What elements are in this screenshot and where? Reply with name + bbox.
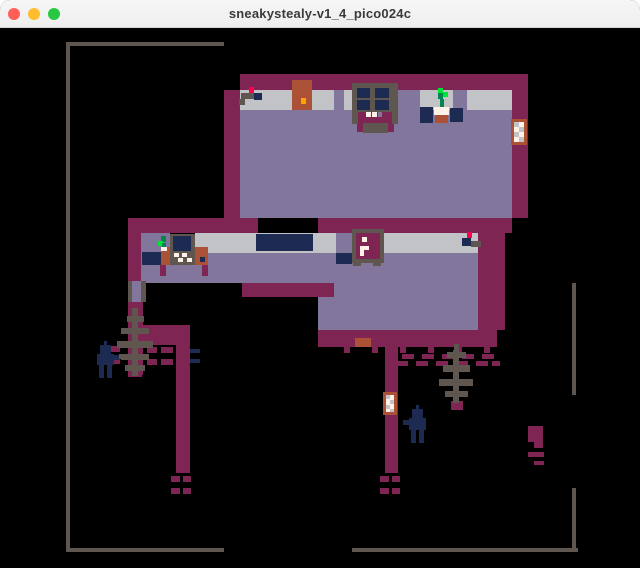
guard2-arm xyxy=(403,420,410,425)
ladder1-check2 xyxy=(519,127,524,132)
fence-l-dash2 xyxy=(161,347,173,353)
door1 xyxy=(292,80,312,110)
hut-dash1 xyxy=(528,452,544,457)
path-left-end-dash3 xyxy=(171,488,180,494)
band-lavender-patch4 xyxy=(336,233,352,253)
safe-handle-stem xyxy=(360,250,364,256)
boundary-bottom-right-line xyxy=(352,548,578,552)
door-mat xyxy=(355,338,371,347)
camera1-foot xyxy=(239,99,245,105)
hedge-dash11 xyxy=(492,361,500,366)
boundary-right-upper-line xyxy=(572,283,576,395)
plant1-leaf2 xyxy=(443,92,448,97)
mid-right-wall xyxy=(478,233,505,330)
desk-leg-right xyxy=(202,265,208,276)
band-lavender-patch2 xyxy=(398,90,420,110)
stove-pane-bl xyxy=(357,100,370,110)
top-room-bottom-wall xyxy=(318,218,512,233)
safe-foot-right xyxy=(373,261,381,266)
band-lavender-patch3 xyxy=(453,90,467,110)
app-window: sneakystealy-v1_4_pico024c xyxy=(0,0,640,568)
guard1-leg-left xyxy=(99,365,104,378)
bench xyxy=(142,252,161,265)
hedge-dash6 xyxy=(396,361,408,366)
hedge-tooth6 xyxy=(484,347,490,353)
camera1-arm xyxy=(241,93,254,99)
camera1-body xyxy=(254,93,262,100)
fence-l-dash3 xyxy=(190,349,200,353)
stove-tooth1 xyxy=(366,112,371,117)
camera1-light xyxy=(249,87,254,93)
stove-pane-tl xyxy=(357,88,370,98)
left-room-top-wall xyxy=(128,218,258,233)
guard2-leg-right xyxy=(419,430,424,443)
desk-knob xyxy=(200,257,205,262)
fence-l-dash5 xyxy=(161,359,173,365)
stove-shoulder-left xyxy=(352,112,358,124)
floor-counter xyxy=(336,253,352,264)
hedge-dash2 xyxy=(422,354,434,359)
path-left-end-dash2 xyxy=(183,476,191,482)
zoom-button[interactable] xyxy=(48,8,60,20)
stove-shoulder-right xyxy=(392,112,398,124)
window-title: sneakystealy-v1_4_pico024c xyxy=(229,6,411,21)
hedge-dash7 xyxy=(416,361,428,366)
stove-tooth3 xyxy=(378,112,382,117)
hut-tail xyxy=(534,442,543,448)
corridor-floor xyxy=(132,281,141,302)
hedge-dash10 xyxy=(476,361,488,366)
door1-handle xyxy=(301,98,306,104)
hedge-dash5 xyxy=(482,354,494,359)
corridor-jamb-right xyxy=(141,281,146,302)
guard1-body xyxy=(97,354,114,365)
top-room-left-wall xyxy=(224,90,240,218)
stove-base xyxy=(363,123,388,133)
hedge-tooth2 xyxy=(372,347,378,353)
hedge-dash1 xyxy=(402,354,414,359)
plant1-pot-base xyxy=(435,115,448,123)
guard1-hand xyxy=(119,354,123,359)
traffic-lights xyxy=(8,8,60,20)
long-counter xyxy=(256,234,313,251)
path-left-end-dash4 xyxy=(183,488,191,494)
boundary-left-line xyxy=(66,42,70,552)
monitor-screen xyxy=(173,236,191,251)
stove-apron-right xyxy=(388,124,394,132)
safe-foot-left xyxy=(353,261,361,266)
guard1-leg-right xyxy=(107,365,112,378)
game-canvas[interactable] xyxy=(0,0,640,568)
guard1-head xyxy=(100,345,111,354)
plant2-pot xyxy=(161,247,167,251)
guard2-leg-left xyxy=(411,430,416,443)
left-room-left-wall xyxy=(128,233,142,281)
path-right-end-dash4 xyxy=(392,488,400,494)
ladder2-check4 xyxy=(390,409,394,412)
hut-dash2 xyxy=(534,461,544,465)
path-left-lower xyxy=(176,345,190,473)
title-bar: sneakystealy-v1_4_pico024c xyxy=(0,0,640,28)
kitchen-counter1 xyxy=(420,107,433,123)
plant1-pot-top xyxy=(434,107,449,115)
path-left-end-dash1 xyxy=(171,476,180,482)
desk-right xyxy=(195,247,208,265)
mid-bottom-wall xyxy=(318,330,497,347)
monitor-key3 xyxy=(178,258,183,262)
stove-pane-br xyxy=(375,100,389,110)
path-right-end-dash1 xyxy=(380,476,389,482)
boundary-top-line xyxy=(66,42,224,46)
monitor-key1 xyxy=(174,253,179,257)
boundary-bottom-left-line xyxy=(66,548,224,552)
minimize-button[interactable] xyxy=(28,8,40,20)
mid-floor-right xyxy=(334,283,478,330)
tree1-trunk xyxy=(132,308,138,376)
mid-low-wall xyxy=(242,283,334,297)
monitor-key2 xyxy=(182,253,187,257)
hedge-tooth4 xyxy=(428,347,434,353)
ladder2-check1 xyxy=(386,395,390,399)
hedge-tooth1 xyxy=(344,347,350,353)
ladder1-check4 xyxy=(519,137,524,142)
band-lavender-patch1 xyxy=(334,90,344,110)
boundary-right-lower-line xyxy=(572,488,576,552)
desk-leg-left xyxy=(160,265,166,276)
stove-pane-tr xyxy=(375,88,389,98)
monitor-key4 xyxy=(187,258,192,262)
hedge-tooth3 xyxy=(400,347,406,353)
path-right-end-dash3 xyxy=(380,488,389,494)
guard2-head xyxy=(412,409,423,418)
top-room-right-wall xyxy=(512,90,528,218)
stove-tooth2 xyxy=(372,112,377,117)
safe-dot xyxy=(362,237,367,242)
path-right-end-dash2 xyxy=(392,476,400,482)
fence-l-dash6 xyxy=(190,359,200,363)
mid-floor-notch xyxy=(318,297,334,330)
tree2-trunk xyxy=(453,350,459,403)
kitchen-counter2 xyxy=(450,108,463,122)
camera2-arm xyxy=(471,241,481,247)
camera2-body xyxy=(462,238,471,246)
close-button[interactable] xyxy=(8,8,20,20)
ladder2-check2 xyxy=(390,400,394,404)
hut-block xyxy=(528,426,543,442)
guard2-body xyxy=(409,418,426,430)
